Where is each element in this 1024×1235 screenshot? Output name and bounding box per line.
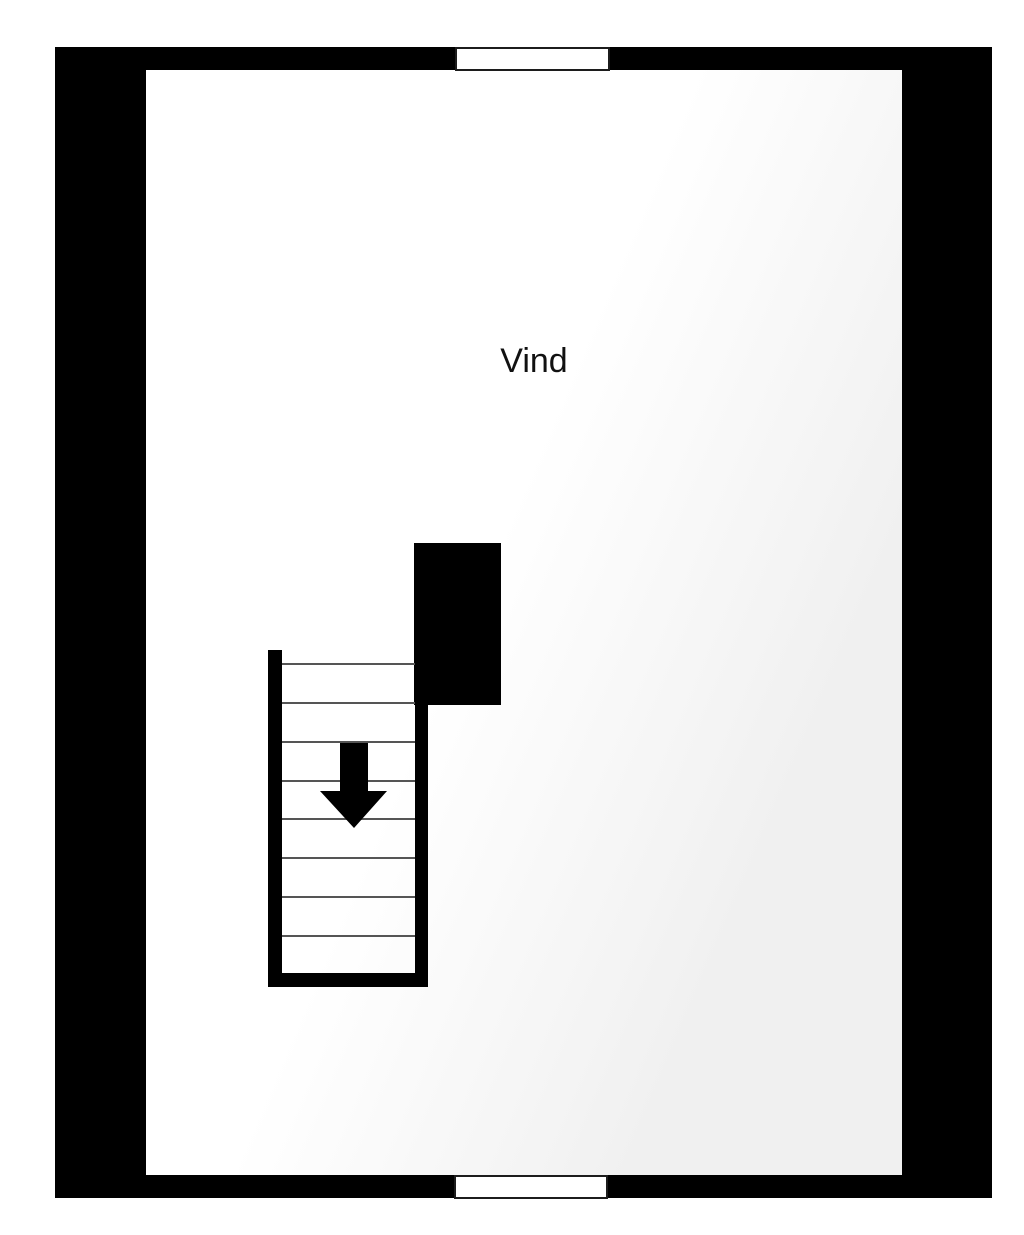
exterior-wall-right <box>902 47 992 1198</box>
floorplan-canvas: Vind <box>0 0 1024 1235</box>
window-opening-top <box>455 47 610 71</box>
room-label: Vind <box>500 344 567 378</box>
attic-room-interior <box>146 70 902 1175</box>
staircase <box>268 650 428 987</box>
down-arrow-shape <box>320 743 387 828</box>
stair-down-arrow-icon <box>268 650 428 987</box>
exterior-wall-left <box>55 47 146 1198</box>
floor-plan <box>55 47 992 1198</box>
window-opening-bottom <box>454 1175 608 1199</box>
